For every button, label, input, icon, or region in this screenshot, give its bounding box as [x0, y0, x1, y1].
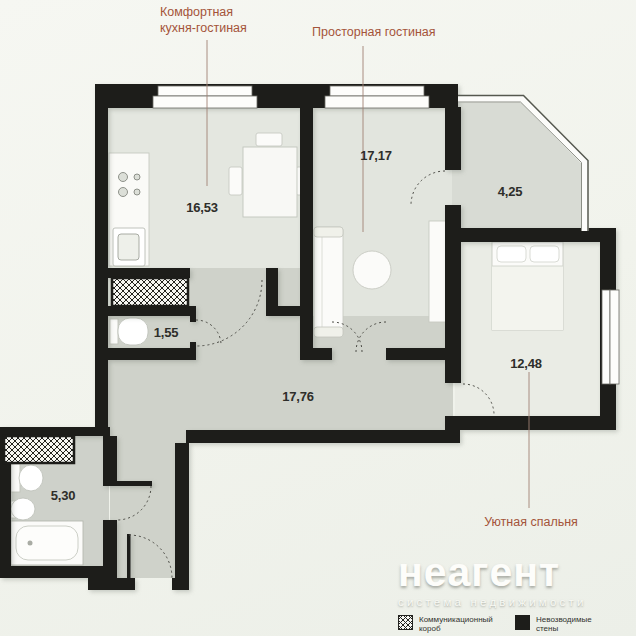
room-entry [110, 443, 175, 578]
legend: Коммуникационный короб Невозводимые стен… [398, 615, 618, 634]
room-balcony [452, 100, 587, 235]
brand-tagline: система недвижимости [398, 596, 618, 608]
kitchen-living-label-line2: кухня-гостиная [160, 21, 247, 35]
kitchen-living-area: 16,53 [186, 200, 218, 215]
bedroom-label: Уютная спальня [484, 515, 578, 529]
wc-toilet [110, 318, 148, 345]
balcony-area: 4,25 [498, 184, 523, 199]
bathroom-toilet [11, 464, 43, 492]
legend-item-walls: Невозводимые стены [515, 615, 616, 634]
kitchen-counter [109, 153, 149, 266]
bathroom-area: 5,30 [51, 488, 76, 503]
bedroom-window [602, 290, 619, 384]
sofa [314, 227, 343, 337]
living-area: 17,17 [360, 148, 392, 163]
bed [492, 242, 563, 330]
watermark: неагент система недвижимости Коммуникаци… [398, 552, 618, 634]
living-label: Просторная гостиная [312, 25, 436, 39]
tv-unit [429, 221, 446, 322]
hallway-area: 17,76 [282, 389, 314, 404]
solid-wall-swatch-icon [515, 615, 530, 630]
legend-label-walls: Невозводимые стены [536, 615, 616, 634]
communication-box-bathroom [4, 436, 74, 463]
legend-label-communication-box: Коммуникационный короб [419, 615, 499, 634]
living-window [325, 86, 429, 108]
kitchen-living-label-line1: Комфортная [160, 5, 233, 19]
brand-logo: неагент [398, 552, 618, 593]
bedroom-area: 12,48 [510, 356, 542, 371]
coffee-table [353, 251, 391, 289]
wc-area: 1,55 [154, 325, 179, 340]
communication-box-kitchen [112, 278, 188, 306]
hatch-swatch-icon [398, 615, 413, 630]
kitchen-window [153, 86, 257, 108]
floor-plan-drawing: Комфортная кухня-гостиная Просторная гос… [0, 0, 636, 636]
floor-plan-page: Комфортная кухня-гостиная Просторная гос… [0, 0, 636, 636]
bathtub [11, 521, 83, 565]
legend-item-communication-box: Коммуникационный короб [398, 615, 499, 634]
bathroom-sink [11, 498, 35, 520]
